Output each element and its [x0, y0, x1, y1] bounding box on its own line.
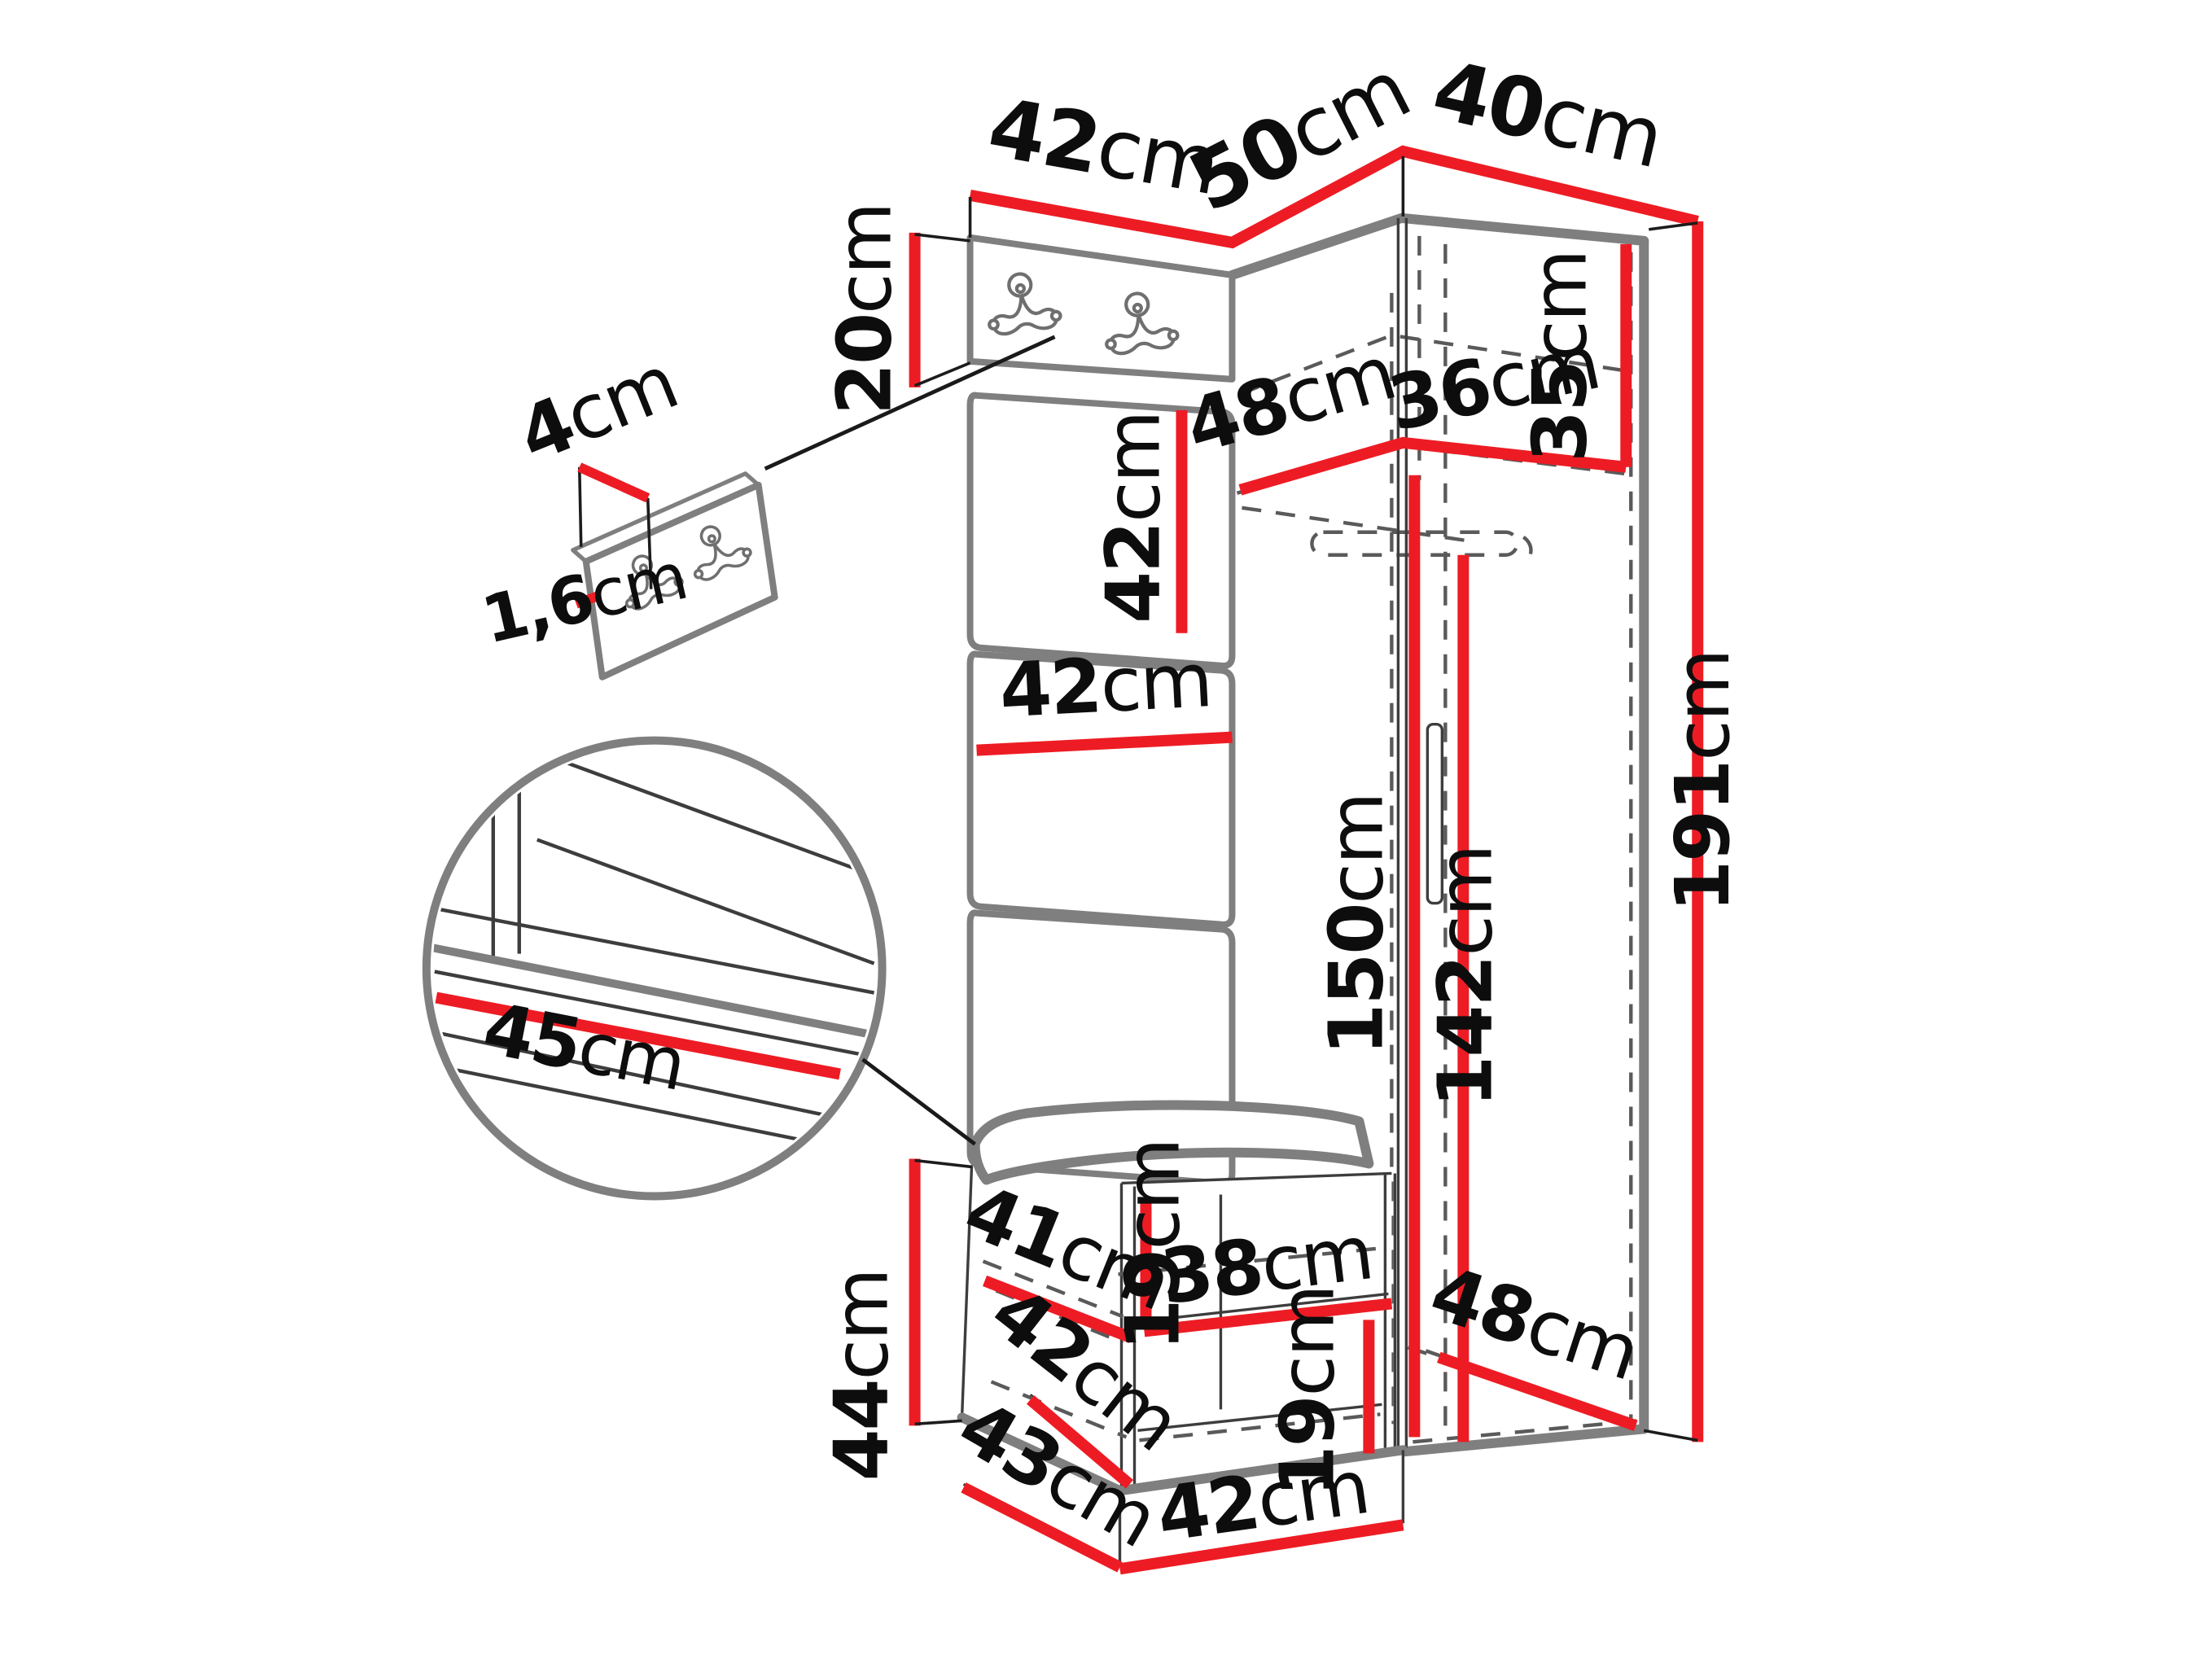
dim-label-bench-height: 44cm — [818, 1269, 905, 1481]
dim-label-cushion-height: 42cm — [1089, 412, 1176, 624]
diagram-canvas: 42cm50cm40cm20cm42cm48cm36cm35cm42cm150c… — [0, 0, 2212, 1658]
dim-label-wardrobe-height: 191cm — [1659, 650, 1746, 913]
dim-label-interior-height: 142cm — [1421, 846, 1509, 1108]
detail-pointer-line — [863, 1060, 975, 1145]
dim-line-4 — [580, 467, 648, 498]
dim-label-hook-panel-offset: 4cm — [506, 339, 689, 479]
dim-label-door-height: 150cm — [1312, 794, 1399, 1056]
dim-label-top-shelf-height: 35cm — [1516, 251, 1603, 462]
dim-label-hook-strip-height: 20cm — [821, 204, 909, 415]
dim-label-cushion-width: 42cm — [997, 637, 1213, 734]
furniture-dimension-diagram: 42cm50cm40cm20cm42cm48cm36cm35cm42cm150c… — [0, 0, 2212, 1658]
bench-detail-circle — [427, 733, 883, 1197]
